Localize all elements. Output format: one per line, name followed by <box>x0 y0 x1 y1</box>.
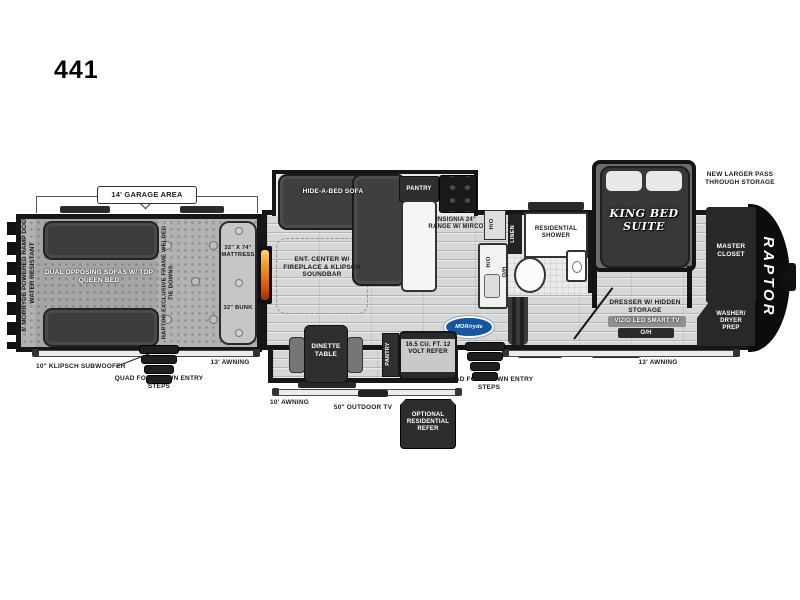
ramp-door-line2: WATER RESISTANT <box>29 197 37 349</box>
toilet-overhead-label: O/H <box>502 257 512 287</box>
bunk-anchor <box>235 329 243 337</box>
tie-down-anchor <box>209 315 218 324</box>
raptor-brand-text: RAPTOR <box>759 212 777 342</box>
kingpin-hitch-base <box>781 270 789 284</box>
bunk-anchor <box>235 227 243 235</box>
dinette-table-label: DINETTE TABLE <box>307 343 345 358</box>
dinette-table: DINETTE TABLE <box>304 325 348 383</box>
range-label: INSIGNIA 24" RANGE W/ MIRCO <box>425 217 487 231</box>
garage-bunk: 32" X 74" MATTRESS 32" BUNK <box>219 221 257 345</box>
pillow <box>646 171 682 191</box>
counter-overhead-label: H/O <box>486 247 496 277</box>
master-closet: MASTER CLOSET <box>706 207 756 303</box>
ramp-door-label: 8' MORRYDE POWERED RAMP DOOR WATER RESIS… <box>21 197 39 349</box>
fireplace-flame <box>261 250 269 300</box>
awning-13-left-label: 13' AWNING <box>200 359 260 367</box>
ramp-door-line1: 8' MORRYDE POWERED RAMP DOOR <box>21 197 29 349</box>
optional-refer-label: OPTIONAL RESIDENTIAL REFER <box>403 412 453 433</box>
raptor-brand-label: RAPTOR <box>757 212 777 342</box>
awning-10-label: 10' AWNING <box>270 399 330 407</box>
bedroom-overhead: O/H <box>618 328 674 338</box>
pantry-cabinet: PANTRY <box>399 176 439 202</box>
dresser-label: DRESSER W/ HIDDEN STORAGE <box>598 299 692 314</box>
tie-downs-label: RAPTOR EXCLUSIVE FRAME WELDED TIE DOWNS <box>162 221 177 345</box>
ent-center-label: ENT. CENTER W/ FIREPLACE & KLIPSCH SOUND… <box>278 256 366 279</box>
entry-landing <box>508 297 528 345</box>
pantry-label: PANTRY <box>400 177 438 201</box>
linen-label-wrap: LINEN <box>510 214 520 254</box>
bedroom-oh-label: O/H <box>618 328 674 338</box>
pillow <box>606 171 642 191</box>
tie-downs-text: RAPTOR EXCLUSIVE FRAME WELDED TIE DOWNS <box>162 221 176 345</box>
entry-steps-left <box>140 345 178 384</box>
bedroom-tv-label: VIZIO LED SMART TV <box>608 316 686 327</box>
pantry-lower-text: PANTRY <box>385 334 391 374</box>
ramp-door <box>7 222 16 349</box>
bunk-mattress-label: 32" X 74" MATTRESS <box>221 245 255 259</box>
awning-13ft-right <box>504 350 738 357</box>
washer-dryer-prep: WASHER/ DRYER PREP <box>697 301 755 346</box>
sink <box>484 274 500 298</box>
bunk-anchor <box>235 279 243 287</box>
counter-ho-text: H/O <box>486 247 493 277</box>
bunk-size-label: 32" BUNK <box>221 305 255 312</box>
bath-sink-bowl <box>572 261 582 273</box>
fireplace <box>258 246 272 304</box>
awning-13-right-label: 13' AWNING <box>628 359 688 367</box>
tie-down-anchor <box>191 277 200 286</box>
refrigerator-label: 16.5 CU. FT. 12 VOLT REFER <box>403 342 453 356</box>
entry-steps-right <box>466 342 504 381</box>
bedroom-tv: VIZIO LED SMART TV <box>608 316 686 327</box>
tie-down-anchor <box>209 241 218 250</box>
bath-sink <box>566 250 587 282</box>
garage-sofa-top <box>43 221 159 260</box>
garage-section: DUAL OPPOSING SOFAS W/ TOP QUEEN BED 32"… <box>16 214 262 352</box>
outdoor-tv-label: 50" OUTDOOR TV <box>330 404 396 412</box>
bed-slide-wall <box>592 266 597 308</box>
kitchen-overhead-label: H/O <box>489 209 499 239</box>
king-bed-label: KING BED SUITE <box>609 208 679 234</box>
refrigerator: 16.5 CU. FT. 12 VOLT REFER <box>399 331 457 380</box>
linen-text: LINEN <box>510 214 516 254</box>
king-bed-slide: KING BED SUITE <box>592 160 696 272</box>
hide-a-bed-label: HIDE-A-BED SOFA <box>282 188 384 196</box>
optional-refer: OPTIONAL RESIDENTIAL REFER <box>400 399 456 449</box>
garage-area-label: 14' GARAGE AREA <box>97 186 197 204</box>
master-closet-label: MASTER CLOSET <box>710 243 752 258</box>
model-number: 441 <box>54 56 99 86</box>
garage-sofas-label: DUAL OPPOSING SOFAS W/ TOP QUEEN BED <box>33 269 165 284</box>
subwoofer-label: 10" KLIPSCH SUBWOOFER <box>36 363 140 371</box>
range-cooktop <box>439 175 477 213</box>
toilet <box>514 257 546 293</box>
outdoor-tv <box>358 390 388 397</box>
kitchen-counter <box>401 200 437 292</box>
washer-dryer-label: WASHER/ DRYER PREP <box>711 311 751 332</box>
dinette-chair <box>347 337 363 373</box>
shower-label: RESIDENTIAL SHOWER <box>528 226 584 240</box>
slide-topper <box>528 202 584 210</box>
toilet-oh-text: O/H <box>502 257 509 287</box>
dinette-chair <box>289 337 305 373</box>
kitchen-ho-text: H/O <box>489 209 496 239</box>
pass-through-label: NEW LARGER PASS THROUGH STORAGE <box>700 171 780 186</box>
garage-sofa-bottom <box>43 308 159 347</box>
pantry-lower-label-wrap: PANTRY <box>385 334 395 374</box>
